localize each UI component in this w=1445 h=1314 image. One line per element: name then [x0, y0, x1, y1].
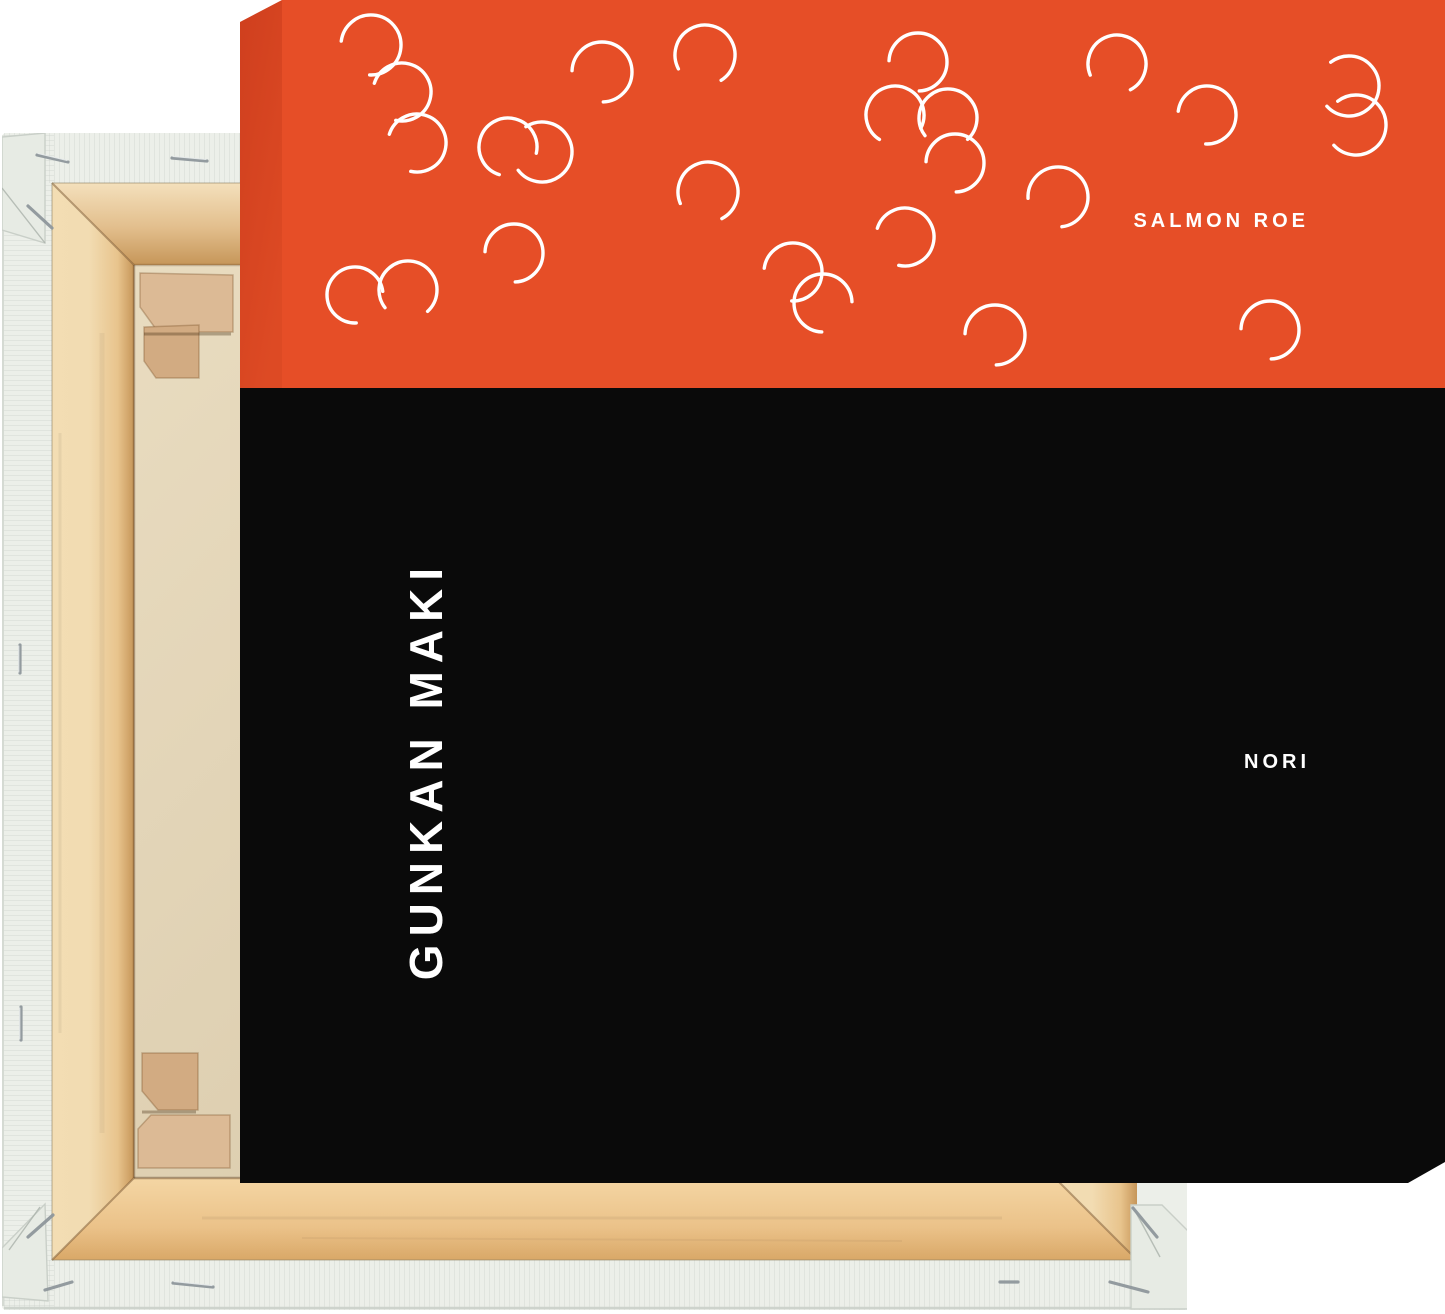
roe-arc — [670, 154, 747, 231]
corner-wedge — [142, 1053, 198, 1110]
canvas-print-front: SALMON ROE GUNKAN MAKI NORI — [240, 0, 1445, 1183]
canvas-side-edge — [240, 0, 282, 388]
roe-arc — [1316, 53, 1381, 118]
roe-arc — [329, 3, 414, 88]
roe-arc — [865, 197, 944, 276]
roe-arc — [877, 21, 959, 103]
roe-arc — [782, 262, 864, 344]
product-mockup-scene: SALMON ROE GUNKAN MAKI NORI — [0, 0, 1445, 1314]
roe-arc — [316, 256, 395, 335]
side-title: GUNKAN MAKI — [403, 560, 449, 980]
corner-wedge — [140, 273, 233, 332]
roe-band: SALMON ROE — [240, 0, 1445, 388]
corner-fold — [2, 133, 45, 243]
roe-arc — [1229, 289, 1311, 371]
roe-arc — [473, 212, 555, 294]
wood-bar-left — [52, 183, 134, 1260]
roe-arc — [1323, 92, 1388, 157]
roe-arc — [1016, 155, 1101, 240]
roe-arc — [468, 107, 547, 186]
roe-arcs-pattern — [240, 0, 1445, 388]
bottom-label: NORI — [1244, 751, 1310, 774]
roe-arc — [668, 18, 741, 91]
roe-arc — [914, 122, 996, 204]
roe-arc — [1080, 27, 1154, 101]
roe-arc — [377, 259, 440, 322]
top-label: SALMON ROE — [1133, 210, 1309, 233]
roe-arc — [560, 30, 645, 115]
roe-arc — [1166, 74, 1248, 156]
roe-arc — [377, 103, 456, 182]
roe-arc — [507, 117, 577, 187]
corner-wedge — [138, 1115, 230, 1168]
roe-arc — [953, 293, 1038, 378]
